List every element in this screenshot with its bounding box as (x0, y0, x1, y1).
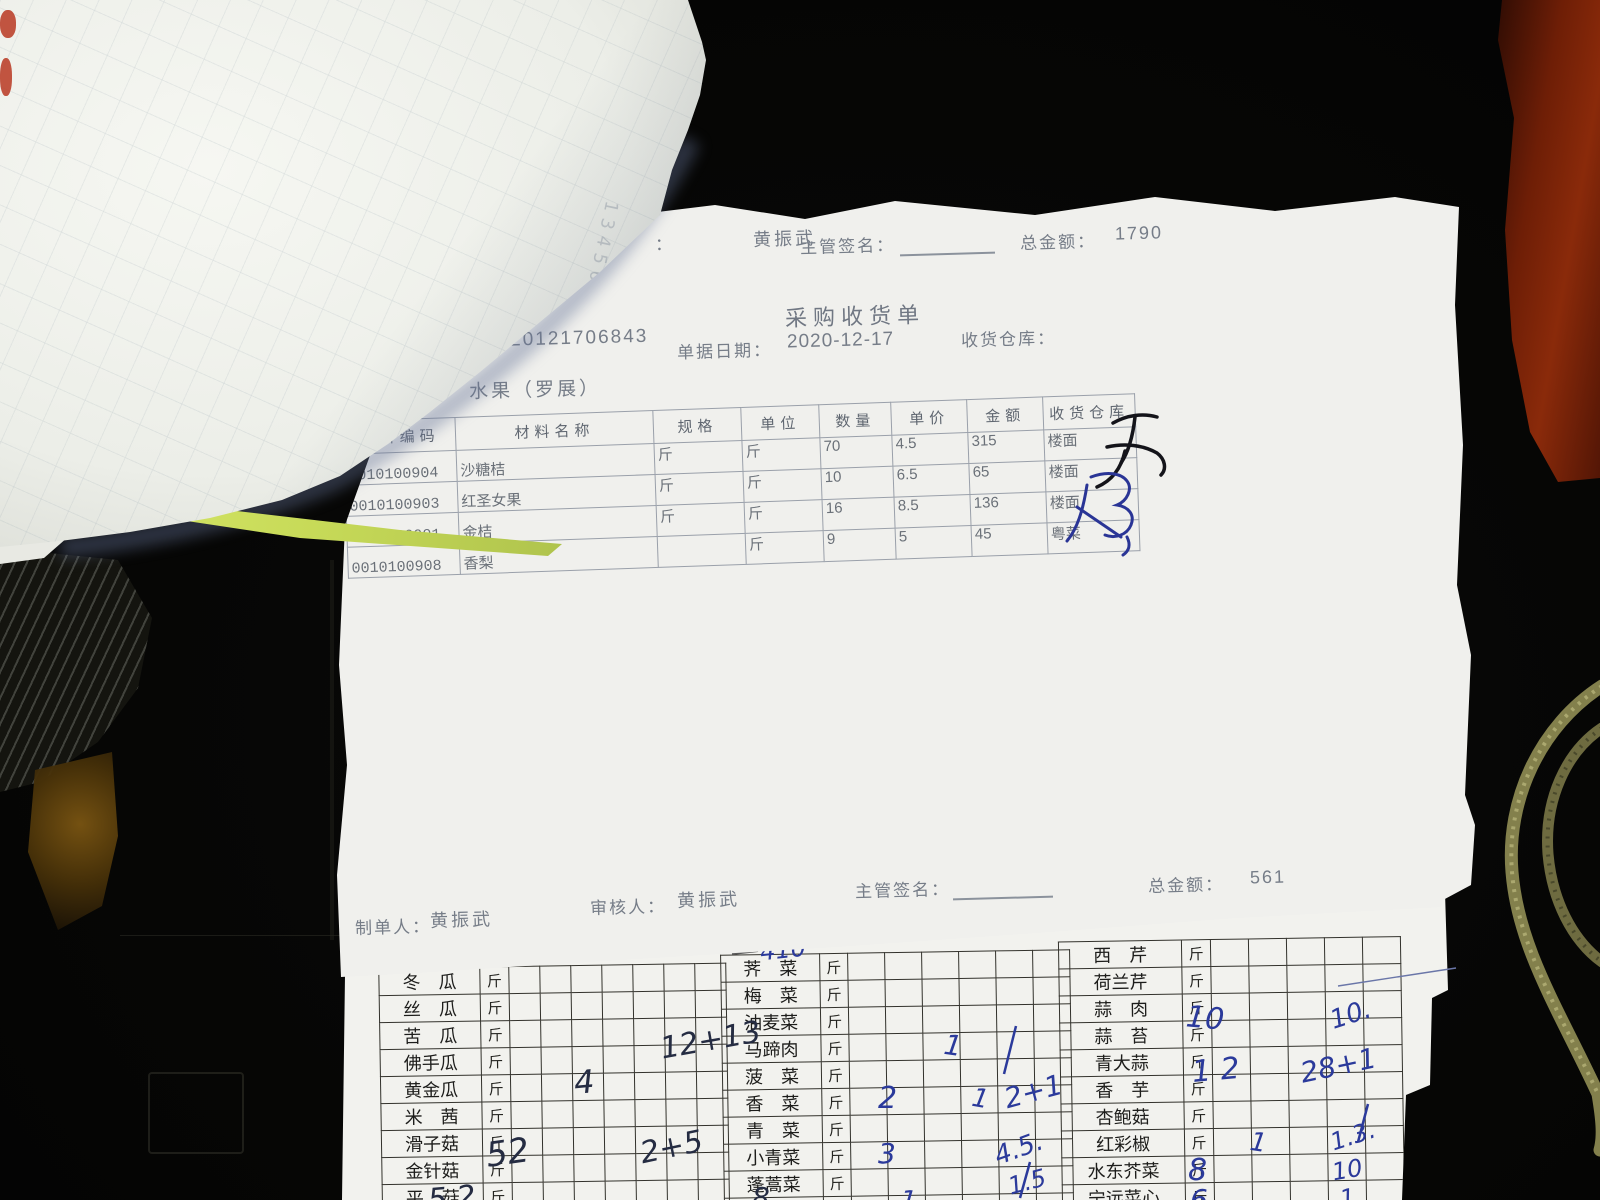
empty-grid-cell (1214, 1182, 1252, 1200)
value-cell (657, 533, 746, 567)
value-cell: 70 (820, 435, 893, 468)
empty-grid-cell (959, 978, 996, 1006)
unit-cell: 斤 (820, 953, 848, 980)
empty-grid-cell (1211, 993, 1249, 1021)
empty-grid-cell (1290, 1154, 1328, 1182)
unit-cell: 斤 (481, 1075, 510, 1102)
receipt-supplier-value: 水果（罗展） (469, 373, 602, 404)
empty-grid-cell (571, 965, 602, 992)
empty-grid-cell (666, 1099, 697, 1126)
unit-cell: 斤 (480, 994, 509, 1021)
empty-grid-cell (512, 1182, 543, 1200)
unit-cell: 斤 (480, 967, 509, 994)
empty-grid-cell (999, 1193, 1036, 1200)
vegetable-name-cell: 苦 瓜 (380, 1021, 481, 1050)
empty-grid-cell (997, 1058, 1034, 1086)
machine-panel-groove (330, 560, 334, 940)
empty-grid-cell (1252, 1154, 1290, 1182)
empty-grid-cell (1324, 937, 1362, 965)
empty-grid-cell (886, 1060, 923, 1088)
receipt-title: 采购收货单 (785, 297, 926, 333)
vegetable-grid-group: 西 芹斤荷兰芹斤蒜 肉斤蒜 苔斤青大蒜斤香 芋斤杏鲍菇斤红彩椒斤水东芥菜斤宁远菜… (1058, 936, 1405, 1200)
empty-grid-cell (634, 1045, 665, 1072)
value-cell: 45 (971, 523, 1048, 557)
empty-grid-cell (540, 966, 571, 993)
empty-grid-cell (961, 1113, 998, 1141)
empty-grid-cell (574, 1181, 605, 1200)
empty-grid-cell (667, 1153, 698, 1180)
vegetable-name-cell: 黄金瓜 (380, 1075, 481, 1104)
vegetable-name-cell: 杏鲍菇 (1061, 1102, 1184, 1131)
vegetable-name-cell: 宁远菜心 (1062, 1183, 1185, 1200)
column-header: 规格 (653, 407, 742, 443)
value-cell: 斤 (654, 440, 743, 474)
value-cell: 粤菜 (1047, 520, 1140, 554)
photo-scene: 冬 瓜斤丝 瓜斤苦 瓜斤佛手瓜斤黄金瓜斤米 茜斤滑子菇斤金针菇斤平 菇斤白玉菇斤… (0, 0, 1600, 1200)
empty-grid-cell (1364, 1045, 1402, 1073)
empty-grid-cell (543, 1182, 574, 1200)
vegetable-name-cell: 蒜 苔 (1060, 1021, 1183, 1050)
vegetable-name-cell: 滑子菇 (381, 1129, 482, 1158)
vegetable-name-cell: 青 菜 (723, 1116, 822, 1145)
unit-cell: 斤 (482, 1129, 511, 1156)
empty-grid-cell (1287, 992, 1325, 1020)
empty-grid-cell (510, 1047, 541, 1074)
unit-cell: 斤 (1184, 1102, 1213, 1129)
empty-grid-cell (604, 1127, 635, 1154)
empty-grid-cell (962, 1167, 999, 1195)
empty-grid-cell (851, 1142, 888, 1170)
footer-auditor-value: 黄振武 (677, 885, 741, 913)
empty-grid-cell (998, 1112, 1035, 1140)
empty-grid-cell (1252, 1181, 1290, 1200)
empty-grid-cell (1325, 991, 1363, 1019)
empty-grid-cell (633, 991, 664, 1018)
empty-grid-cell (851, 1196, 888, 1200)
column-header: 数量 (819, 402, 892, 437)
empty-grid-cell (1250, 1019, 1288, 1047)
empty-grid-cell (542, 1128, 573, 1155)
empty-grid-cell (1212, 1047, 1250, 1075)
empty-grid-cell (511, 1101, 542, 1128)
empty-grid-cell (512, 1155, 543, 1182)
empty-grid-cell (603, 1046, 634, 1073)
empty-grid-cell (572, 1073, 603, 1100)
empty-grid-cell (573, 1100, 604, 1127)
empty-grid-cell (887, 1114, 924, 1142)
value-cell: 9 (823, 528, 896, 561)
vegetable-name-cell: 荷兰芹 (1059, 967, 1182, 996)
empty-grid-cell (636, 1180, 667, 1200)
vegetable-name-cell: 平 菇 (382, 1183, 483, 1200)
empty-grid-cell (960, 1032, 997, 1060)
unit-cell: 斤 (1182, 967, 1211, 994)
empty-grid-cell (1326, 1045, 1364, 1073)
unit-cell: 斤 (483, 1156, 512, 1183)
empty-grid-cell (1213, 1128, 1251, 1156)
empty-grid-cell (996, 950, 1033, 978)
rope-braid-highlight (1511, 686, 1600, 1094)
prev-footer-sign-label: 主管签名： (800, 231, 896, 259)
empty-grid-cell (664, 991, 695, 1018)
empty-grid-cell (1362, 937, 1400, 965)
empty-grid-cell (923, 1060, 960, 1088)
unit-cell: 斤 (1183, 1048, 1212, 1075)
value-cell: 斤 (745, 531, 824, 565)
value-cell: 315 (968, 430, 1045, 464)
empty-grid-cell (1250, 1046, 1288, 1074)
rope-inner-strand (1548, 728, 1600, 962)
rope-outer-strand (1511, 686, 1600, 1150)
empty-grid-cell (543, 1155, 574, 1182)
value-cell: 6.5 (893, 464, 970, 498)
unit-cell: 斤 (481, 1048, 510, 1075)
unit-cell: 斤 (1184, 1075, 1213, 1102)
empty-grid-cell (666, 1126, 697, 1153)
empty-grid-cell (885, 1006, 922, 1034)
prev-footer-total-label: 总金额： (1020, 227, 1097, 254)
value-cell: 136 (970, 492, 1047, 526)
empty-grid-cell (665, 1072, 696, 1099)
empty-grid-cell (850, 1088, 887, 1116)
empty-grid-cell (922, 1006, 959, 1034)
value-cell: 斤 (655, 471, 744, 505)
empty-grid-cell (962, 1140, 999, 1168)
empty-grid-cell (1251, 1100, 1289, 1128)
red-cloth-object (1496, 0, 1600, 490)
red-edge-mark (0, 10, 16, 38)
empty-grid-cell (1366, 1180, 1404, 1200)
empty-grid-cell (1365, 1126, 1403, 1154)
empty-grid-cell (1210, 939, 1248, 967)
empty-grid-cell (664, 964, 695, 991)
empty-grid-cell (849, 1061, 886, 1089)
vegetable-grid-group: 冬 瓜斤丝 瓜斤苦 瓜斤佛手瓜斤黄金瓜斤米 茜斤滑子菇斤金针菇斤平 菇斤白玉菇斤 (378, 963, 730, 1200)
vegetable-name-cell: 蓬蒿菜 (724, 1170, 823, 1199)
empty-grid-cell (1290, 1181, 1328, 1200)
column-header: 收货仓库 (1043, 394, 1136, 430)
receipt-warehouse-label: 收货仓库： (961, 324, 1057, 352)
empty-grid-cell (999, 1166, 1036, 1194)
empty-grid-cell (850, 1115, 887, 1143)
empty-grid-cell (1328, 1153, 1366, 1181)
footer-maker-label: 制单人： (355, 912, 432, 939)
value-cell: 5 (895, 526, 972, 560)
empty-grid-cell (1289, 1127, 1327, 1155)
value-cell: 16 (822, 497, 895, 530)
empty-grid-cell (888, 1141, 925, 1169)
footer-auditor-label: 审核人： (590, 892, 667, 919)
value-cell: 楼面 (1045, 458, 1138, 492)
empty-grid-cell (922, 952, 959, 980)
vegetable-name-cell: 青大蒜 (1060, 1048, 1183, 1077)
empty-grid-cell (1213, 1074, 1251, 1102)
value-cell: 斤 (743, 469, 822, 503)
receipt-date-label: 单据日期： (677, 336, 773, 364)
empty-grid-cell (571, 992, 602, 1019)
empty-grid-cell (540, 993, 571, 1020)
machine-panel-edge (120, 935, 345, 1200)
footer-total-label: 总金额： (1148, 870, 1225, 897)
empty-grid-cell (602, 992, 633, 1019)
empty-grid-cell (1289, 1100, 1327, 1128)
receipt-items-table: 材料编码材料名称规格单位数量单价金额收货仓库0010100904沙糖桔斤斤704… (342, 393, 1140, 579)
vegetable-grid-group: 荠 菜斤梅 菜斤油麦菜斤马蹄肉斤菠 菜斤香 菜斤青 菜斤小青菜斤蓬蒿菜斤榄 菜斤 (720, 949, 1074, 1200)
vegetable-name-cell: 水东芥菜 (1062, 1156, 1185, 1185)
empty-grid-cell (848, 1007, 885, 1035)
vegetable-name-cell: 丝 瓜 (379, 994, 480, 1023)
empty-grid-cell (573, 1127, 604, 1154)
unit-cell: 斤 (820, 980, 848, 1007)
empty-grid-cell (960, 1059, 997, 1087)
vegetable-name-cell: 菠 菜 (722, 1062, 821, 1091)
empty-grid-cell (633, 964, 664, 991)
vegetable-name-cell: 荠 菜 (721, 954, 820, 983)
empty-grid-cell (885, 952, 922, 980)
empty-grid-cell (888, 1168, 925, 1196)
vegetable-name-cell: 佛手瓜 (380, 1048, 481, 1077)
red-edge-mark (0, 58, 12, 96)
prev-footer-sign-line (900, 252, 995, 256)
unit-cell: 斤 (481, 1021, 510, 1048)
column-header: 单价 (891, 400, 968, 436)
vegetable-name-cell: 梅 菜 (721, 981, 820, 1010)
footer-total-value: 561 (1250, 867, 1287, 889)
empty-grid-cell (962, 1194, 999, 1200)
value-cell: 8.5 (894, 495, 971, 529)
empty-grid-cell (887, 1087, 924, 1115)
empty-grid-cell (885, 979, 922, 1007)
empty-grid-cell (542, 1101, 573, 1128)
vegetable-name-cell: 香 菜 (723, 1089, 822, 1118)
empty-grid-cell (635, 1126, 666, 1153)
empty-grid-cell (541, 1020, 572, 1047)
empty-grid-cell (1288, 1046, 1326, 1074)
empty-grid-cell (925, 1194, 962, 1200)
empty-grid-cell (510, 1020, 541, 1047)
empty-grid-cell (1365, 1099, 1403, 1127)
unit-cell: 斤 (821, 1034, 849, 1061)
empty-grid-cell (924, 1087, 961, 1115)
footer-maker-value: 黄振武 (430, 905, 494, 933)
empty-grid-cell (510, 1074, 541, 1101)
empty-grid-cell (961, 1086, 998, 1114)
material-code-cell: 0010100908 (347, 543, 460, 578)
column-header: 金额 (967, 397, 1044, 433)
empty-grid-cell (888, 1195, 925, 1200)
empty-grid-cell (1248, 938, 1286, 966)
empty-grid-cell (634, 1072, 665, 1099)
empty-grid-cell (603, 1019, 634, 1046)
empty-grid-cell (886, 1033, 923, 1061)
column-header: 单位 (741, 405, 820, 441)
unit-cell: 斤 (821, 1061, 849, 1088)
empty-grid-cell (509, 993, 540, 1020)
unit-cell: 斤 (1183, 1021, 1212, 1048)
empty-grid-cell (997, 1031, 1034, 1059)
unit-cell: 斤 (823, 1196, 851, 1200)
unit-cell: 斤 (823, 1142, 851, 1169)
empty-grid-cell (1213, 1101, 1251, 1129)
empty-grid-cell (1327, 1126, 1365, 1154)
empty-grid-cell (572, 1019, 603, 1046)
unit-cell: 斤 (822, 1115, 850, 1142)
empty-grid-cell (959, 951, 996, 979)
unit-cell: 斤 (820, 1007, 848, 1034)
empty-grid-cell (959, 1005, 996, 1033)
empty-grid-cell (1288, 1019, 1326, 1047)
empty-grid-cell (925, 1141, 962, 1169)
empty-grid-cell (636, 1153, 667, 1180)
material-code-cell: 0010100903 (345, 481, 458, 516)
empty-grid-cell (1326, 1018, 1364, 1046)
unit-cell: 斤 (483, 1183, 512, 1200)
empty-grid-cell (1289, 1073, 1327, 1101)
empty-grid-cell (1287, 965, 1325, 993)
empty-grid-cell (848, 980, 885, 1008)
empty-grid-cell (1212, 1020, 1250, 1048)
prev-footer-total-value: 1790 (1115, 222, 1164, 244)
vegetable-name-cell: 蒜 肉 (1059, 994, 1182, 1023)
value-cell: 65 (969, 461, 1046, 495)
empty-grid-cell (1325, 964, 1363, 992)
empty-grid-cell (634, 1018, 665, 1045)
unit-cell: 斤 (1184, 1129, 1213, 1156)
value-cell: 4.5 (892, 433, 969, 467)
empty-grid-cell (635, 1099, 666, 1126)
empty-grid-cell (1327, 1072, 1365, 1100)
empty-grid-cell (1249, 965, 1287, 993)
empty-grid-cell (667, 1180, 698, 1200)
footer-sign-label: 主管签名： (855, 875, 951, 903)
unit-cell: 斤 (1185, 1156, 1214, 1183)
unit-cell: 斤 (823, 1169, 851, 1196)
value-cell: 楼面 (1044, 427, 1137, 461)
empty-grid-cell (1327, 1099, 1365, 1127)
empty-grid-cell (1211, 966, 1249, 994)
empty-grid-cell (922, 979, 959, 1007)
empty-grid-cell (605, 1181, 636, 1200)
empty-grid-cell (923, 1033, 960, 1061)
gold-object (25, 750, 125, 935)
empty-grid-cell (1251, 1073, 1289, 1101)
vegetable-name-cell: 米 茜 (381, 1102, 482, 1131)
empty-grid-cell (1214, 1155, 1252, 1183)
empty-grid-cell (603, 1073, 634, 1100)
vegetable-name-cell: 西 芹 (1058, 940, 1181, 969)
empty-grid-cell (1286, 938, 1324, 966)
empty-grid-cell (996, 977, 1033, 1005)
empty-grid-cell (1363, 964, 1401, 992)
empty-grid-cell (925, 1167, 962, 1195)
empty-grid-cell (1249, 992, 1287, 1020)
value-cell: 斤 (744, 500, 823, 534)
empty-grid-cell (602, 965, 633, 992)
vegetable-name-cell: 马蹄肉 (722, 1035, 821, 1064)
empty-grid-cell (924, 1114, 961, 1142)
footer-sign-line (953, 896, 1053, 900)
empty-grid-cell (1364, 1072, 1402, 1100)
empty-grid-cell (996, 1004, 1033, 1032)
empty-grid-cell (509, 966, 540, 993)
vegetable-name-cell: 红彩椒 (1061, 1129, 1184, 1158)
vegetable-name-cell: 油麦菜 (721, 1008, 820, 1037)
vegetable-name-cell: 小青菜 (724, 1143, 823, 1172)
empty-grid-cell (1366, 1153, 1404, 1181)
empty-grid-cell (541, 1074, 572, 1101)
value-cell: 斤 (656, 502, 745, 536)
unit-cell: 斤 (1181, 940, 1210, 967)
empty-grid-cell (1328, 1180, 1366, 1200)
unit-cell: 斤 (482, 1102, 511, 1129)
machine-panel-recess (148, 1072, 244, 1154)
empty-grid-cell (848, 953, 885, 981)
empty-grid-cell (572, 1046, 603, 1073)
empty-grid-cell (574, 1154, 605, 1181)
unit-cell: 斤 (822, 1088, 850, 1115)
prev-footer-label-fragment: ： (655, 230, 673, 255)
empty-grid-cell (511, 1128, 542, 1155)
empty-grid-cell (998, 1085, 1035, 1113)
empty-grid-cell (1251, 1127, 1289, 1155)
empty-grid-cell (1363, 991, 1401, 1019)
vegetable-name-cell: 金针菇 (382, 1156, 483, 1185)
empty-grid-cell (851, 1169, 888, 1197)
vegetable-name-cell: 香 芋 (1061, 1075, 1184, 1104)
value-cell: 10 (821, 466, 894, 499)
receipt-date-value: 2020-12-17 (787, 329, 895, 354)
unit-cell: 斤 (1182, 994, 1211, 1021)
empty-grid-cell (849, 1034, 886, 1062)
empty-grid-cell (665, 1045, 696, 1072)
empty-grid-cell (665, 1018, 696, 1045)
value-cell: 楼面 (1046, 489, 1139, 523)
empty-grid-cell (1364, 1018, 1402, 1046)
empty-grid-cell (541, 1047, 572, 1074)
rope-braid-shadow (1548, 728, 1600, 962)
value-cell: 斤 (742, 438, 821, 472)
empty-grid-cell (605, 1154, 636, 1181)
empty-grid-cell (604, 1100, 635, 1127)
empty-grid-cell (999, 1139, 1036, 1167)
unit-cell: 斤 (1185, 1183, 1214, 1200)
